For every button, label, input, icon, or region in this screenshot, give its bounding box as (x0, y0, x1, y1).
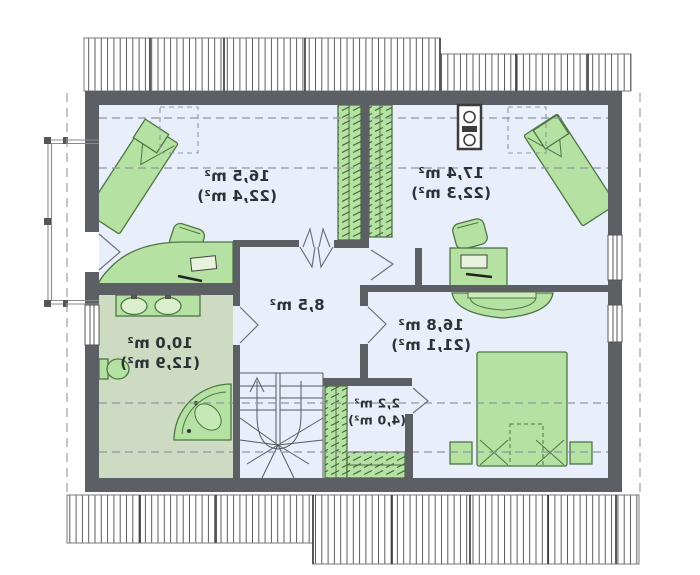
wall-closet-right (405, 414, 413, 478)
wall-left (85, 91, 99, 232)
area-gross: (22,4 m²) (197, 187, 277, 207)
area-net: 16,8 m² (391, 316, 471, 336)
wall-room-divider (361, 105, 369, 240)
wall-closet-top (323, 378, 412, 386)
area-gross: (4,0 m²) (348, 412, 406, 429)
floor-plan: 16,5 m² (22,4 m²) 17,4 m² (22,3 m²) 8,5 … (0, 0, 700, 575)
hall-label: 8,5 m² (269, 296, 324, 316)
area-net: 2,2 m² (348, 396, 406, 413)
wall-bottom (85, 478, 622, 492)
bedroom-label: 16,8 m² (21,1 m²) (391, 316, 471, 356)
area-net: 8,5 m² (269, 296, 324, 316)
floor-plan-drawing (0, 0, 700, 575)
room-top-left-label: 16,5 m² (22,4 m²) (197, 167, 277, 207)
closet-label: 2,2 m² (4,0 m²) (348, 396, 406, 429)
nightstand-icon (450, 442, 472, 464)
wall-bedroom-top (360, 285, 608, 292)
wall-bathroom-top (85, 283, 240, 295)
nightstand-icon (570, 442, 592, 464)
area-net: 16,5 m² (197, 167, 277, 187)
area-gross: (21,1 m²) (391, 336, 471, 356)
wall-top (85, 91, 622, 105)
window-icon (608, 235, 622, 280)
window-icon (608, 305, 622, 342)
window-icon (85, 305, 99, 345)
chimney-icon (458, 105, 481, 149)
area-gross: (12,9 m²) (120, 354, 200, 374)
wall-right (608, 91, 622, 235)
room-top-right-label: 17,4 m² (22,3 m²) (411, 164, 491, 204)
bathroom-label: 10,0 m² (12,9 m²) (120, 334, 200, 374)
double-bed-icon (477, 352, 567, 466)
area-net: 10,0 m² (120, 334, 200, 354)
area-net: 17,4 m² (411, 164, 491, 184)
area-gross: (22,3 m²) (411, 184, 491, 204)
